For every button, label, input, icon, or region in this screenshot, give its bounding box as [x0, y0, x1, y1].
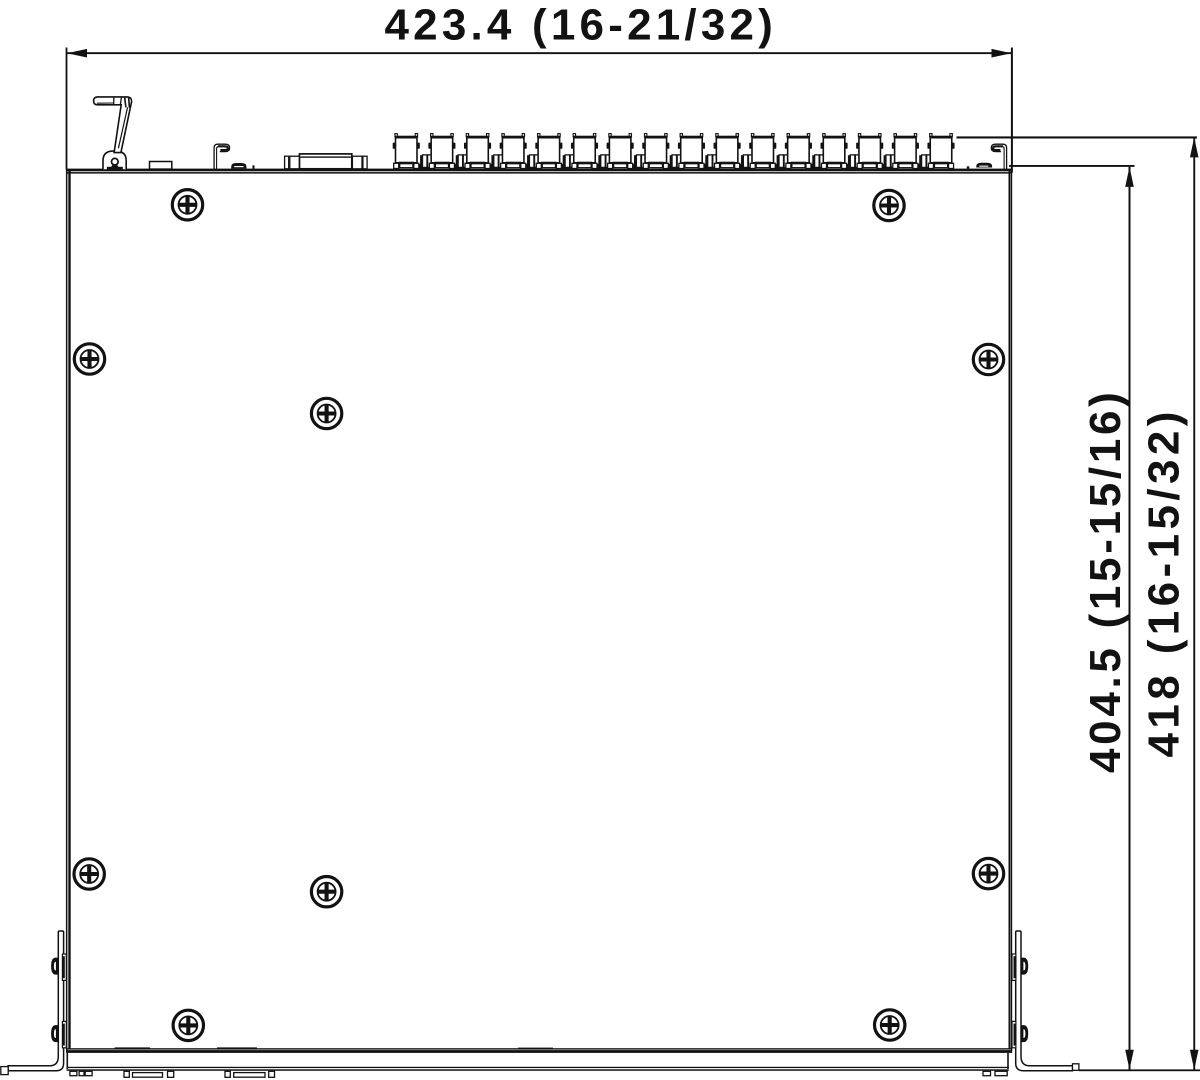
svg-text:418 (16-15/32): 418 (16-15/32) [1140, 407, 1189, 757]
svg-text:404.5 (15-15/16): 404.5 (15-15/16) [1081, 388, 1130, 773]
svg-text:423.4 (16-21/32): 423.4 (16-21/32) [385, 1, 778, 50]
